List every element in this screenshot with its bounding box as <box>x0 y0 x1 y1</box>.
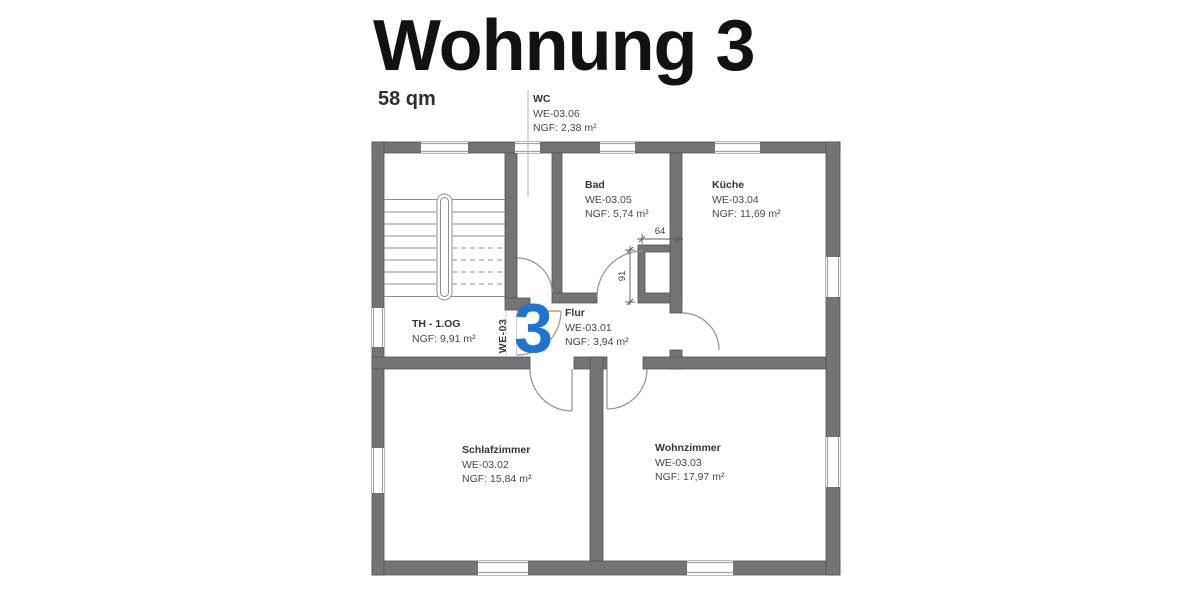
stair-handrail <box>437 194 452 300</box>
wall-stairwell-flur <box>505 153 517 298</box>
wall-bad-kueche <box>670 153 682 313</box>
dimension-64-label: 64 <box>655 226 666 237</box>
room-ngf: NGF: 11,69 m² <box>712 207 781 222</box>
room-ngf: NGF: 2,38 m² <box>533 121 597 136</box>
apartment-number: 3 <box>514 297 553 359</box>
room-label-bad: Bad WE-03.05 NGF: 5,74 m² <box>585 178 649 222</box>
window <box>372 448 384 493</box>
room-code: WE-03.03 <box>655 456 724 471</box>
wall-flur-wohnzimmer <box>643 357 826 369</box>
room-name: TH - 1.OG <box>412 317 476 332</box>
window <box>600 142 635 153</box>
wall-th-schlafzimmer <box>372 357 530 369</box>
room-name: Wohnzimmer <box>655 441 724 456</box>
room-code: WE-03.01 <box>565 321 629 336</box>
window <box>826 257 840 297</box>
door-arc-schlafzimmer <box>530 369 572 411</box>
room-name: Schlafzimmer <box>462 443 531 458</box>
room-name: WC <box>533 92 597 107</box>
wall-right <box>826 142 840 575</box>
room-ngf: NGF: 3,94 m² <box>565 335 629 350</box>
room-ngf: NGF: 15,84 m² <box>462 472 531 487</box>
door-arc-kueche <box>682 313 719 350</box>
window <box>421 142 468 153</box>
apartment-code: WE-03 <box>497 319 509 354</box>
room-label-treppenhaus: TH - 1.OG NGF: 9,91 m² <box>412 317 476 346</box>
window <box>826 437 840 487</box>
room-label-kueche: Küche WE-03.04 NGF: 11,69 m² <box>712 178 781 222</box>
staircase <box>384 194 505 300</box>
shaft-void <box>645 252 670 293</box>
window <box>687 561 733 575</box>
room-code: WE-03.02 <box>462 458 531 473</box>
room-label-wc: WC WE-03.06 NGF: 2,38 m² <box>533 92 597 136</box>
room-label-schlafzimmer: Schlafzimmer WE-03.02 NGF: 15,84 m² <box>462 443 531 487</box>
room-label-flur: Flur WE-03.01 NGF: 3,94 m² <box>565 306 629 350</box>
floorplan-page: Wohnung 3 58 qm <box>0 0 1200 600</box>
window <box>478 561 528 575</box>
room-label-wohnzimmer: Wohnzimmer WE-03.03 NGF: 17,97 m² <box>655 441 724 485</box>
room-ngf: NGF: 5,74 m² <box>585 207 649 222</box>
wall-bad-flur <box>552 293 597 303</box>
door-arc-wc <box>517 258 552 293</box>
wall-schlaf-wohn <box>590 357 603 561</box>
room-code: WE-03.04 <box>712 193 781 208</box>
window <box>372 308 384 347</box>
wall-wc-bad <box>552 153 562 293</box>
dimension-91-label: 91 <box>617 271 628 282</box>
room-ngf: NGF: 9,91 m² <box>412 332 476 347</box>
room-name: Flur <box>565 306 629 321</box>
door-arc-wohnzimmer <box>607 369 647 409</box>
window <box>715 142 760 153</box>
room-name: Küche <box>712 178 781 193</box>
room-code: WE-03.05 <box>585 193 649 208</box>
wall-bottom <box>372 561 840 575</box>
floor-plan-drawing: 64 91 <box>0 0 1200 600</box>
room-code: WE-03.06 <box>533 107 597 122</box>
room-ngf: NGF: 17,97 m² <box>655 470 724 485</box>
room-name: Bad <box>585 178 649 193</box>
